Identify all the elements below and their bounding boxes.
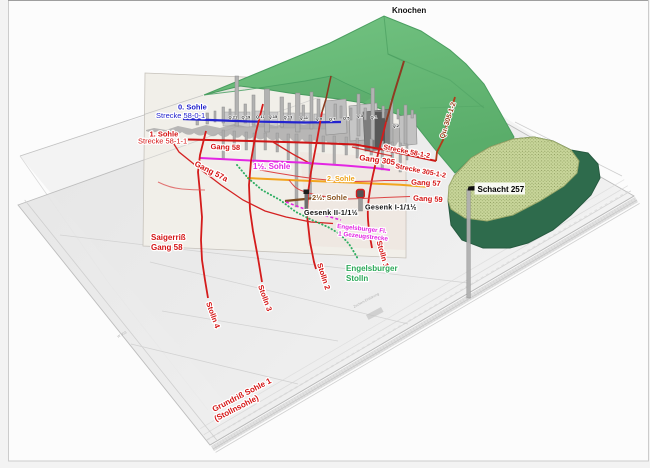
svg-text:Q.5: Q.5 xyxy=(343,116,350,121)
svg-text:Saigerriß: Saigerriß xyxy=(151,233,186,242)
svg-text:Gang 59: Gang 59 xyxy=(413,194,443,205)
svg-text:Q.19: Q.19 xyxy=(242,115,251,120)
svg-text:Strecke 58-0-1: Strecke 58-0-1 xyxy=(156,111,205,120)
svg-text:Q.9: Q.9 xyxy=(316,116,323,121)
svg-text:Q.13: Q.13 xyxy=(284,115,293,120)
svg-text:Q.15: Q.15 xyxy=(269,114,278,119)
svg-text:Gang 57: Gang 57 xyxy=(411,178,441,189)
svg-text:Schacht 257: Schacht 257 xyxy=(478,185,525,194)
svg-text:Gesenk II-1/1½: Gesenk II-1/1½ xyxy=(304,208,358,217)
svg-text:Gang 58: Gang 58 xyxy=(210,142,240,152)
svg-text:Q.21: Q.21 xyxy=(229,115,238,120)
svg-text:Q.7: Q.7 xyxy=(329,117,336,122)
svg-text:Engelsburger: Engelsburger xyxy=(346,264,398,273)
svg-text:2½. Sohle: 2½. Sohle xyxy=(312,193,347,202)
svg-text:Q.17: Q.17 xyxy=(256,114,265,119)
svg-text:Q.3: Q.3 xyxy=(357,113,364,118)
svg-text:Knochen: Knochen xyxy=(392,6,426,15)
svg-text:Q.2: Q.2 xyxy=(393,123,400,128)
svg-text:Stolln: Stolln xyxy=(346,274,368,283)
svg-text:Q.1: Q.1 xyxy=(371,115,378,120)
svg-text:Gang 58: Gang 58 xyxy=(151,243,183,252)
svg-text:2. Sohle: 2. Sohle xyxy=(327,174,355,183)
svg-text:Q.11: Q.11 xyxy=(300,115,309,120)
svg-text:Gesenk I-1/1½: Gesenk I-1/1½ xyxy=(365,203,417,212)
svg-text:Strecke 58-1-1: Strecke 58-1-1 xyxy=(138,137,187,146)
svg-text:1½. Sohle: 1½. Sohle xyxy=(253,162,291,171)
